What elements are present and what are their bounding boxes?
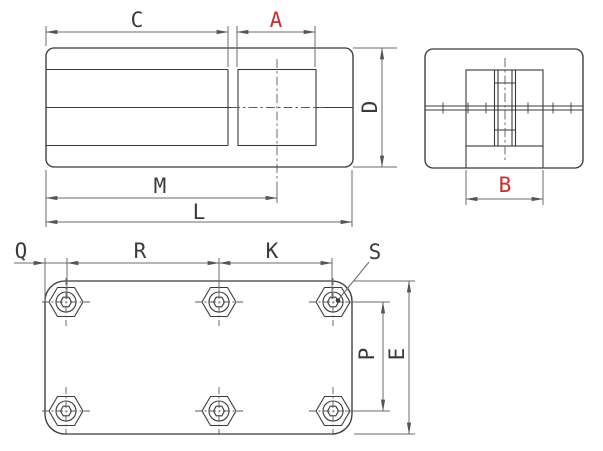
dim-label-r: R [134,239,147,263]
counterbore-hole [195,387,243,435]
dim-label-s: S [369,240,382,264]
leader-dot [336,298,341,303]
dim-label-m: M [154,174,167,198]
dim-label-c: C [131,8,144,32]
technical-drawing: C A D M L [0,0,603,451]
mounting-holes [42,278,357,435]
counterbore-hole [42,278,90,326]
side-view: C A D M L [46,8,397,227]
counterbore-hole [42,387,90,435]
dim-label-q: Q [15,239,28,263]
dim-label-p: P [355,348,379,361]
plan-view-dimensions [14,258,415,434]
side-view-dimensions [46,26,397,227]
dim-label-b: B [499,173,512,197]
seam-serrations [443,103,571,114]
dim-label-d: D [358,101,382,114]
plan-view: Q R K S P E [14,239,415,435]
end-view: B [425,49,583,205]
pocket-front [466,70,543,146]
dim-label-l: L [193,200,206,224]
drawing-sheet: C A D M L [0,0,603,451]
end-view-features [425,70,583,168]
side-view-centerlines [231,59,324,199]
end-view-outline [425,49,583,168]
dim-label-k: K [266,239,279,263]
dim-label-e: E [385,348,409,361]
dim-label-a: A [270,8,283,32]
